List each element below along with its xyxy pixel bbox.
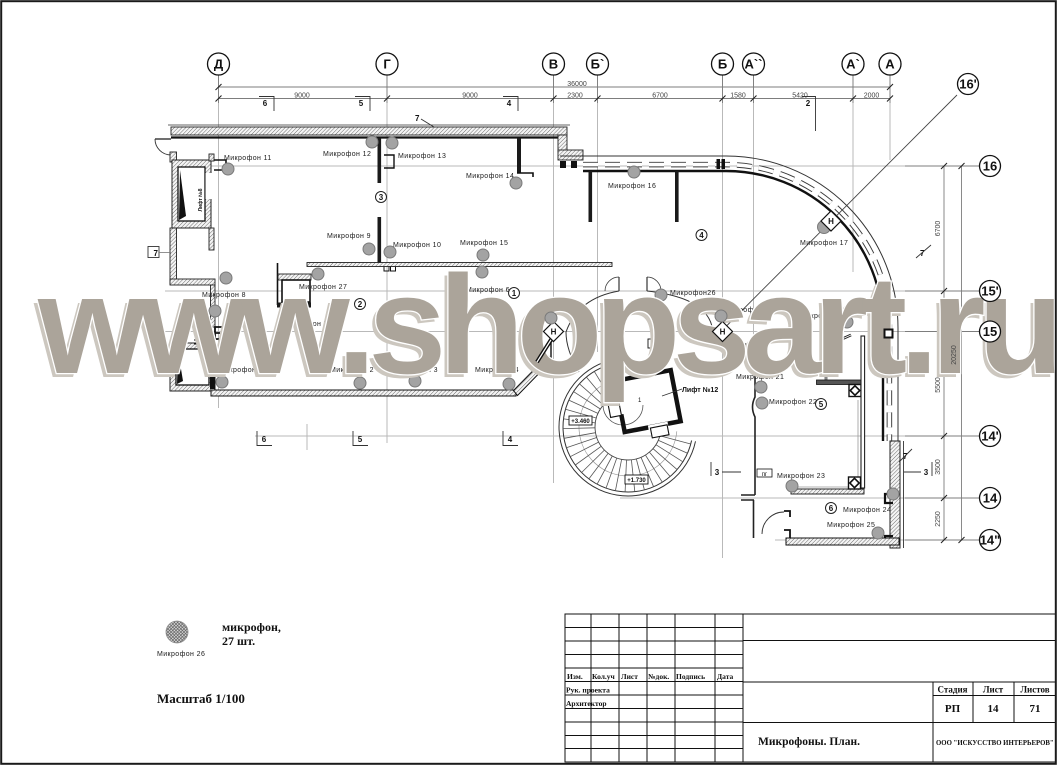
svg-text:ООО "ИСКУССТВО ИНТЕРЬЕРОВ": ООО "ИСКУССТВО ИНТЕРЬЕРОВ" (936, 740, 1054, 747)
svg-text:71: 71 (1030, 703, 1041, 715)
svg-text:5: 5 (359, 99, 364, 108)
svg-text:РП: РП (945, 703, 961, 715)
svg-text:А``: А`` (744, 57, 762, 72)
svg-text:14: 14 (988, 703, 1000, 715)
svg-text:микрофон,: микрофон, (222, 620, 281, 634)
svg-text:5: 5 (358, 435, 363, 444)
svg-text:Д: Д (214, 57, 224, 72)
svg-text:В: В (549, 57, 558, 72)
svg-text:Микрофон 24: Микрофон 24 (843, 507, 891, 514)
svg-text:2: 2 (806, 99, 811, 108)
svg-text:4: 4 (508, 435, 513, 444)
svg-text:16': 16' (959, 77, 977, 92)
svg-text:Микрофон 25: Микрофон 25 (827, 522, 875, 529)
svg-text:15: 15 (983, 324, 997, 339)
svg-text:Микрофон 12: Микрофон 12 (323, 151, 371, 158)
svg-text:Лист: Лист (621, 672, 638, 681)
svg-text:9000: 9000 (294, 93, 310, 100)
svg-text:Подпись: Подпись (676, 672, 705, 681)
svg-text:6700: 6700 (652, 93, 668, 100)
svg-text:Лист: Лист (983, 685, 1004, 695)
svg-text:Кол.уч: Кол.уч (592, 672, 616, 681)
svg-text:Б: Б (718, 57, 727, 72)
svg-text:Н: Н (828, 217, 834, 226)
svg-text:Микрофон 16: Микрофон 16 (608, 183, 656, 190)
svg-text:Микрофон 13: Микрофон 13 (398, 153, 446, 160)
svg-text:16: 16 (983, 159, 997, 174)
svg-text:Н: Н (720, 328, 726, 337)
svg-text:27 шт.: 27 шт. (222, 634, 255, 648)
svg-text:Масштаб 1/100: Масштаб 1/100 (157, 691, 245, 706)
svg-text:Микрофон 14: Микрофон 14 (466, 173, 514, 180)
svg-text:А`: А` (846, 57, 860, 72)
svg-text:А: А (885, 57, 895, 72)
svg-text:20250: 20250 (951, 345, 958, 365)
svg-text:6: 6 (829, 504, 834, 513)
svg-text:Микрофон 11: Микрофон 11 (224, 155, 272, 162)
svg-text:+1.730: +1.730 (627, 478, 646, 484)
svg-text:36000: 36000 (567, 81, 587, 88)
svg-text:14': 14' (981, 429, 999, 444)
svg-text:Рук. проекта: Рук. проекта (566, 686, 610, 695)
svg-text:6: 6 (262, 435, 267, 444)
svg-text:3500: 3500 (935, 459, 942, 475)
svg-text:6: 6 (263, 99, 268, 108)
svg-text:Микрофон 23: Микрофон 23 (777, 473, 825, 480)
svg-text:Листов: Листов (1020, 685, 1049, 695)
svg-text:4: 4 (699, 231, 704, 240)
svg-text:14: 14 (983, 491, 998, 506)
svg-text:14": 14" (980, 533, 1001, 548)
svg-text:Лифт №8: Лифт №8 (197, 188, 204, 211)
svg-text:Архитектор: Архитектор (566, 699, 607, 708)
svg-text:Микрофоны. План.: Микрофоны. План. (758, 736, 860, 748)
svg-text:2000: 2000 (864, 93, 880, 100)
svg-text:Изм.: Изм. (567, 672, 583, 681)
svg-text:3: 3 (379, 193, 384, 202)
svg-text:Микрофон 9: Микрофон 9 (327, 233, 371, 240)
svg-text:Б`: Б` (591, 57, 605, 72)
svg-text:Микрофон 26: Микрофон 26 (157, 651, 205, 658)
svg-text:15': 15' (981, 284, 999, 299)
svg-text:1580: 1580 (730, 93, 746, 100)
svg-text:6700: 6700 (935, 221, 942, 237)
svg-text:www.shopsart.ru: www.shopsart.ru (37, 246, 1056, 403)
svg-text:7: 7 (415, 114, 420, 123)
svg-text:№док.: №док. (648, 672, 669, 681)
svg-text:Стадия: Стадия (937, 685, 967, 695)
svg-text:3: 3 (924, 468, 929, 477)
svg-text:Н: Н (551, 328, 557, 337)
svg-text:+3.460: +3.460 (571, 419, 590, 425)
svg-text:4: 4 (507, 99, 512, 108)
svg-text:Дата: Дата (717, 672, 733, 681)
svg-text:2250: 2250 (935, 511, 942, 527)
svg-text:пг: пг (762, 472, 768, 478)
svg-text:3: 3 (715, 468, 720, 477)
svg-text:9000: 9000 (462, 93, 478, 100)
svg-text:Г: Г (383, 57, 391, 72)
svg-text:2300: 2300 (567, 93, 583, 100)
